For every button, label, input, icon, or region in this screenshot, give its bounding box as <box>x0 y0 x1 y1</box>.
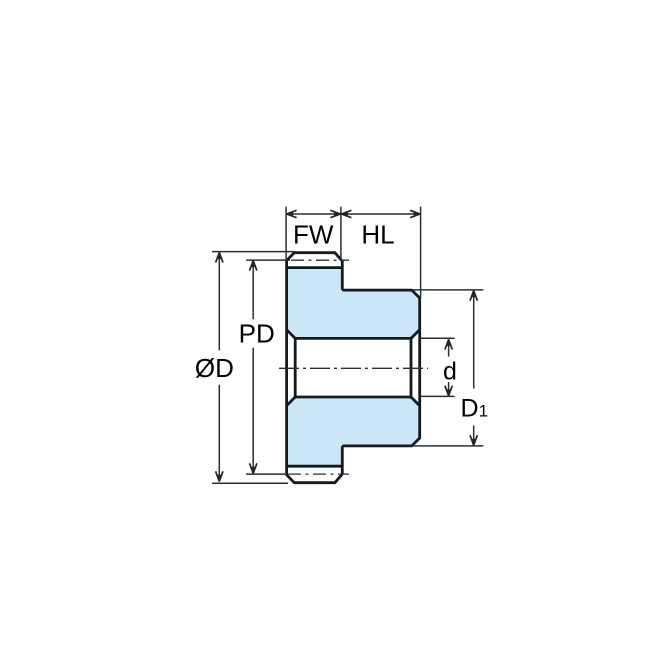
svg-text:HL: HL <box>361 219 394 249</box>
svg-text:ØD: ØD <box>195 353 234 383</box>
svg-text:d: d <box>443 358 457 386</box>
svg-text:PD: PD <box>239 319 275 349</box>
svg-text:FW: FW <box>293 219 334 249</box>
